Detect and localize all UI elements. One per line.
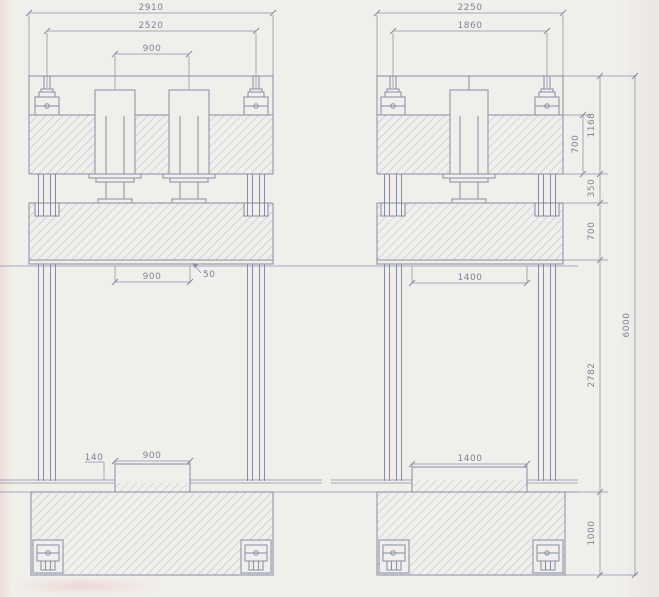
dim-side-base-height: 1000 [587, 521, 597, 546]
dim-side-overall-height: 6000 [622, 313, 632, 338]
left-press-crosshead [29, 115, 273, 174]
dim-side-column-clear: 2782 [587, 363, 597, 388]
dim-side-crosshead-height: 700 [571, 135, 581, 154]
dim-side-head-assembly: 1168 [587, 113, 597, 138]
left-press-platen [29, 203, 273, 264]
right-press-platen [377, 203, 563, 264]
dim-right-die-opening: 1400 [458, 273, 483, 283]
dim-side-open-gap: 350 [587, 179, 597, 198]
right-press-base [377, 492, 565, 575]
dim-left-plate-thickness: 50 [203, 270, 215, 280]
dim-side-platen-height: 700 [587, 222, 597, 241]
dim-left-cylinder-spacing: 900 [143, 44, 162, 54]
dim-right-column-spacing: 1860 [458, 21, 483, 31]
right-press-pad: 1400 [409, 454, 530, 492]
dim-left-column-spacing: 2520 [139, 21, 164, 31]
left-press: 2910 2520 900 [26, 3, 276, 575]
left-press-base [31, 492, 273, 575]
technical-drawing-sheet: 2910 2520 900 [0, 0, 659, 597]
dim-left-pad-height: 140 [85, 453, 104, 463]
left-press-die-dimension: 900 [112, 266, 193, 285]
dim-right-pad-width: 1400 [458, 454, 483, 464]
left-press-piston-rods [89, 174, 215, 203]
side-dimensions: 700 1168 350 700 2782 1000 6000 [563, 73, 638, 578]
left-press-pad: 900 140 [85, 451, 193, 492]
press-elevation-drawing: 2910 2520 900 [0, 0, 659, 597]
right-press-top-dimensions: 2250 1860 [374, 3, 566, 88]
right-press-piston-rod [443, 174, 495, 203]
left-press-plate-leader: 50 [193, 263, 216, 280]
right-press-main-cylinder [450, 76, 488, 174]
dim-left-pad-width: 900 [143, 451, 162, 461]
dim-right-overall-width: 2250 [458, 3, 483, 13]
dim-left-overall-width: 2910 [139, 3, 164, 13]
left-press-column-nuts [35, 76, 268, 115]
right-press: 2250 1860 [374, 3, 566, 575]
right-press-die-dimension: 1400 [409, 266, 530, 286]
dim-left-die-opening: 900 [143, 272, 162, 282]
